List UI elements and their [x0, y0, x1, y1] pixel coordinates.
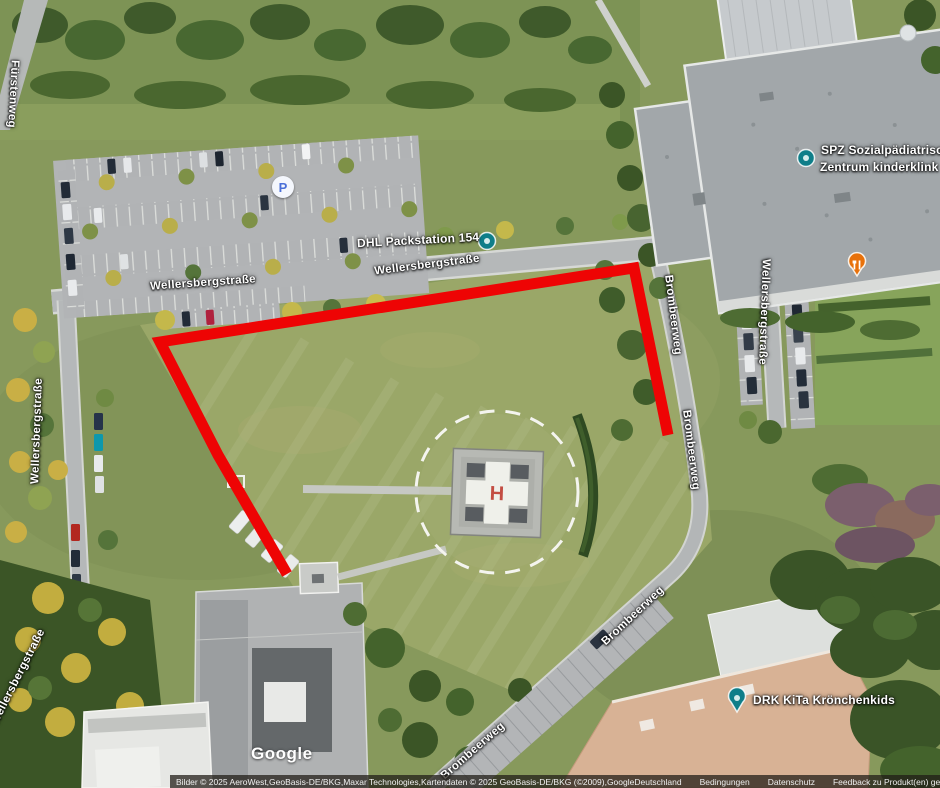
map-viewport[interactable]: H Fürstenweg Wellersbergstraße Wellersbe…: [0, 0, 940, 788]
link-country[interactable]: Deutschland: [634, 777, 681, 787]
poi-label-drk[interactable]: DRK KiTa Krönchenkids: [753, 693, 895, 707]
helipad-h-marking: H: [489, 483, 504, 505]
hedge: [860, 320, 920, 340]
parking-lot-main: [53, 135, 429, 318]
satellite-imagery: H: [0, 0, 940, 788]
tree: [556, 217, 574, 235]
poi-pin-spz[interactable]: [798, 150, 815, 167]
poi-label-spz-line2[interactable]: Zentrum kinderklink: [820, 160, 939, 174]
tree: [496, 221, 514, 239]
parking-icon-letter: P: [279, 180, 288, 195]
hedge: [785, 311, 855, 333]
google-logo[interactable]: Google: [251, 744, 313, 764]
poi-label-spz-line1[interactable]: SPZ Sozialpädiatrische: [821, 143, 940, 157]
link-feedback[interactable]: Feedback zu Produkt(en) geben: [833, 777, 940, 787]
attribution-bar: Bilder © 2025 AeroWest,GeoBasis-DE/BKG,M…: [170, 775, 940, 788]
attribution-copyright: Bilder © 2025 AeroWest,GeoBasis-DE/BKG,M…: [176, 777, 634, 787]
tree: [758, 420, 782, 444]
attribution-links: Deutschland Bedingungen Datenschutz Feed…: [634, 777, 940, 787]
tree: [739, 411, 757, 429]
link-privacy[interactable]: Datenschutz: [768, 777, 815, 787]
tree: [155, 310, 175, 330]
poi-pin-dhl[interactable]: [479, 233, 496, 250]
rooftop-dome: [900, 25, 916, 41]
parking-icon[interactable]: P: [272, 176, 294, 198]
link-terms[interactable]: Bedingungen: [700, 777, 750, 787]
tree: [612, 214, 628, 230]
hedge: [720, 308, 780, 328]
